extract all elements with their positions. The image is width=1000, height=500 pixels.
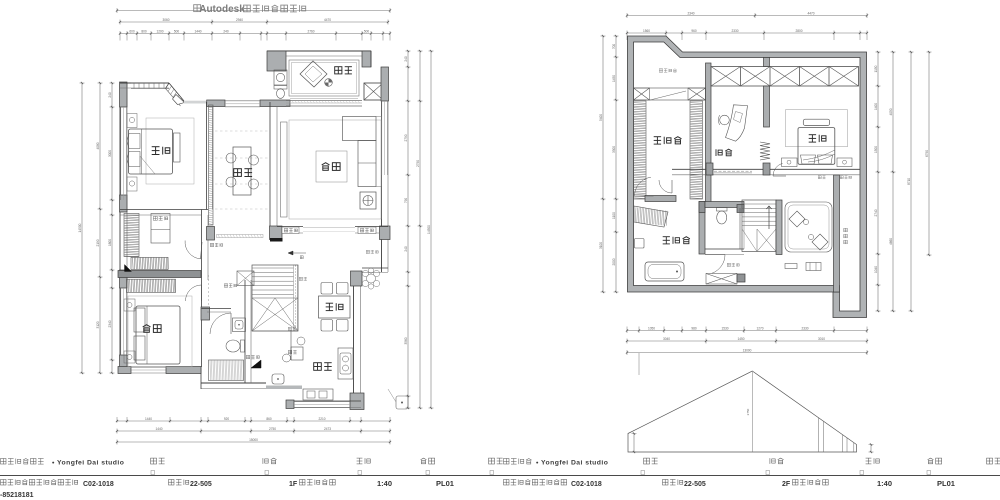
svg-text:3120: 3120	[96, 321, 100, 328]
svg-text:2340: 2340	[108, 320, 112, 327]
svg-text:1440: 1440	[194, 29, 201, 33]
svg-text:1:40: 1:40	[377, 479, 392, 488]
svg-text:3300: 3300	[612, 146, 616, 153]
svg-text:15000: 15000	[249, 438, 258, 442]
svg-text:1440: 1440	[145, 417, 152, 421]
svg-text:1800: 1800	[108, 239, 112, 246]
svg-text:22-505: 22-505	[684, 481, 706, 488]
svg-text:3010: 3010	[818, 337, 825, 341]
svg-text:6790: 6790	[925, 150, 929, 157]
svg-text:240: 240	[404, 56, 408, 62]
svg-text:1500: 1500	[874, 146, 878, 153]
svg-text:PL01: PL01	[937, 479, 955, 488]
svg-text:1400: 1400	[874, 103, 878, 110]
svg-text:1150: 1150	[874, 65, 878, 72]
svg-text:1440: 1440	[155, 427, 162, 431]
svg-text:2F: 2F	[782, 481, 791, 488]
svg-text:2790: 2790	[404, 134, 408, 141]
svg-text:3560: 3560	[404, 337, 408, 344]
svg-text:800: 800	[141, 29, 147, 33]
svg-text:3040: 3040	[663, 337, 670, 341]
svg-text:1450: 1450	[737, 337, 744, 341]
svg-text:1270: 1270	[756, 326, 763, 330]
svg-text:2750: 2750	[746, 408, 750, 415]
svg-text:2750: 2750	[269, 427, 276, 431]
svg-text:3000: 3000	[108, 150, 112, 157]
svg-text:790: 790	[404, 198, 408, 204]
svg-text:860: 860	[266, 417, 272, 421]
svg-text:700: 700	[612, 44, 616, 50]
svg-text:2000: 2000	[612, 258, 616, 265]
svg-text:1450: 1450	[612, 75, 616, 82]
svg-text:2800: 2800	[795, 29, 802, 33]
svg-text:22-505: 22-505	[190, 481, 212, 488]
svg-text:2190: 2190	[96, 239, 100, 246]
svg-text:1530: 1530	[721, 326, 728, 330]
svg-text:Autodesk: Autodesk	[199, 4, 245, 15]
svg-text:2340: 2340	[687, 11, 694, 15]
svg-text:4470: 4470	[807, 11, 814, 15]
svg-text:2940: 2940	[236, 18, 243, 22]
svg-text:920: 920	[224, 417, 230, 421]
svg-text:500: 500	[364, 29, 370, 33]
svg-text:240: 240	[223, 29, 229, 33]
svg-text:2210: 2210	[318, 417, 325, 421]
svg-text:960: 960	[691, 29, 697, 33]
svg-text:600: 600	[129, 29, 135, 33]
svg-text:8710: 8710	[907, 178, 911, 185]
svg-text:13000: 13000	[743, 348, 752, 352]
svg-text:240: 240	[108, 92, 112, 98]
svg-text:2760: 2760	[307, 29, 314, 33]
svg-text:4660: 4660	[889, 238, 893, 245]
svg-text:3100: 3100	[599, 242, 603, 249]
svg-text:C02-1018: C02-1018	[83, 481, 114, 488]
svg-text:3060: 3060	[162, 18, 169, 22]
svg-text:2473: 2473	[324, 427, 331, 431]
svg-text:980: 980	[691, 326, 697, 330]
svg-text:14500: 14500	[427, 225, 431, 234]
svg-text:1050: 1050	[648, 326, 655, 330]
svg-text:1:40: 1:40	[877, 479, 892, 488]
svg-text:5400: 5400	[599, 114, 603, 121]
svg-text:500: 500	[174, 29, 180, 33]
svg-text:• Yongfei Dai studio: • Yongfei Dai studio	[52, 460, 124, 467]
svg-text:1040: 1040	[874, 266, 878, 273]
svg-text:4470: 4470	[324, 18, 331, 22]
svg-text:2740: 2740	[874, 209, 878, 216]
svg-text:1F: 1F	[289, 481, 298, 488]
svg-text:1560: 1560	[643, 29, 650, 33]
svg-text:PL01: PL01	[436, 479, 454, 488]
svg-text:1200: 1200	[156, 29, 163, 33]
svg-text:1100: 1100	[612, 212, 616, 219]
svg-text:2790: 2790	[416, 160, 420, 167]
svg-text:4080: 4080	[96, 142, 100, 149]
svg-text:2330: 2330	[731, 29, 738, 33]
svg-text:C02-1018: C02-1018	[571, 481, 602, 488]
svg-text:2330: 2330	[801, 326, 808, 330]
svg-text:14500: 14500	[78, 223, 82, 232]
svg-text:-85218181: -85218181	[0, 492, 34, 499]
svg-text:• Yongfei Dai studio: • Yongfei Dai studio	[536, 460, 608, 467]
svg-text:4050: 4050	[889, 108, 893, 115]
svg-text:240: 240	[404, 246, 408, 252]
